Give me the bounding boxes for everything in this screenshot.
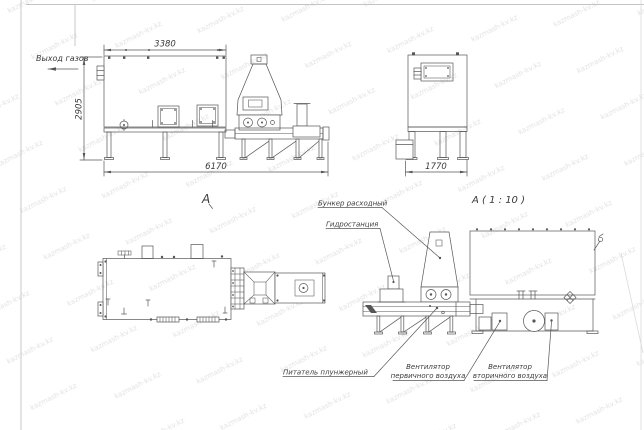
- label-view-a: А: [201, 192, 210, 206]
- label-hydrostation: Гидростанция: [326, 221, 378, 229]
- dim-text-3380: 3380: [154, 40, 176, 50]
- plunger-feeder: [363, 302, 483, 316]
- secondary-air-fan: [524, 311, 559, 332]
- engineering-drawing: kazmash-kv.kz kazmash-kv.kz: [0, 0, 644, 430]
- watermark-layer: [0, 0, 644, 430]
- plan-flange-strip: [231, 268, 244, 309]
- side-flange: [414, 68, 421, 79]
- dim-text-6170: 6170: [205, 162, 227, 172]
- label-hopper: Бункер расходный: [318, 200, 388, 208]
- label-primary-fan-1: Вентилятор: [406, 363, 450, 371]
- dim-text-1770: 1770: [425, 162, 447, 172]
- plan-fan-housing: [275, 273, 325, 303]
- label-primary-fan-2: первичного воздуха: [391, 372, 466, 380]
- dim-text-2905: 2905: [75, 98, 85, 120]
- gas-outlet-flange: [97, 66, 104, 80]
- label-secondary-fan-2: вторичного воздуха: [473, 372, 547, 380]
- label-detail-a: А ( 1 : 10 ): [471, 195, 525, 206]
- label-gas-outlet: Выход газов: [36, 54, 89, 63]
- side-feeder-box: [396, 140, 413, 159]
- label-plunger-feeder: Питатель плунжерный: [283, 369, 368, 377]
- plan-hopper: [244, 272, 275, 304]
- label-secondary-fan-1: Вентилятор: [488, 363, 532, 371]
